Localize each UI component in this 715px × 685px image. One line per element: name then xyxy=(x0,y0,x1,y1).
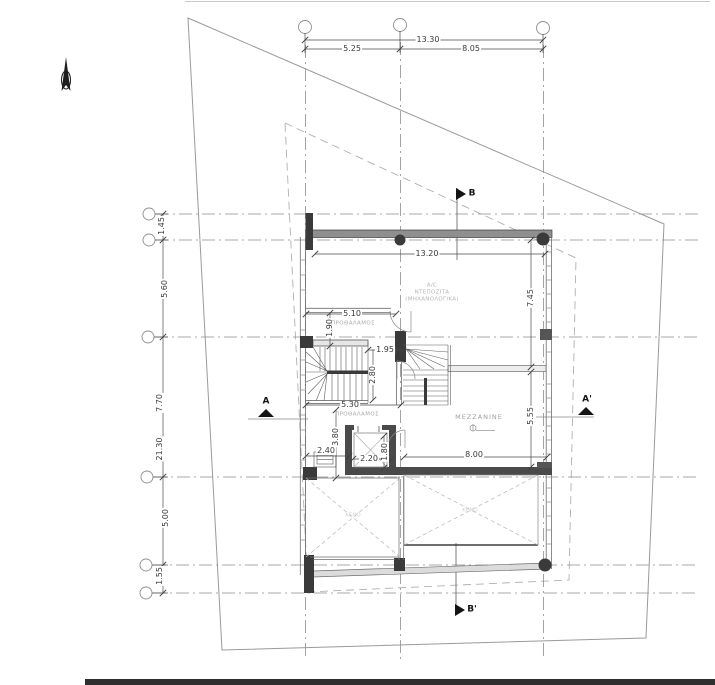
section-label-b-prime: B' xyxy=(466,606,478,615)
room-label-void-right: ΚΕΝΟ xyxy=(461,508,479,514)
dim-left-overall: 21.30 xyxy=(156,437,164,462)
room-label-vestibule-lower: ΠΡΟΘΑΛΑΜΟΣ xyxy=(334,412,380,418)
dim-right-depth: 7.45 xyxy=(527,288,535,308)
dim-top-seg-a: 5.25 xyxy=(342,45,362,53)
section-label-b: B xyxy=(468,190,477,199)
stair-top-wall xyxy=(313,340,368,346)
section-label-a: A xyxy=(262,398,271,407)
dim-left-seg-2: 5.60 xyxy=(161,279,169,299)
mezzanine-bottom-wall xyxy=(345,467,552,475)
dim-top-seg-b: 8.05 xyxy=(461,45,481,53)
dim-left-seg-5: 1.55 xyxy=(156,566,164,586)
stair-main xyxy=(306,342,368,403)
section-line-b xyxy=(455,188,466,616)
dim-mezzanine-width: 8.00 xyxy=(464,451,484,459)
north-arrow-icon xyxy=(62,57,71,91)
dim-left-seg-4: 5.00 xyxy=(162,508,170,528)
section-a-arrow-icon xyxy=(258,409,274,417)
dim-stair-width: 1.95 xyxy=(375,346,395,354)
dim-hall-depth: 3.80 xyxy=(332,427,340,447)
top-wall xyxy=(306,230,552,238)
dim-lift-depth: 1.80 xyxy=(381,442,389,462)
voids xyxy=(306,475,538,560)
dim-top-overall: 13.30 xyxy=(416,36,441,44)
dim-ac-room-width: 13.20 xyxy=(415,250,440,258)
dim-left-seg-3: 7.70 xyxy=(156,393,164,413)
level-marker-icon xyxy=(470,424,495,431)
dim-left-seg-1: 1.45 xyxy=(158,216,166,236)
dim-stair-depth: 2.80 xyxy=(369,365,377,385)
right-wall xyxy=(546,237,551,569)
stair-mezzanine xyxy=(403,345,451,405)
dim-vestibule-width: 5.10 xyxy=(342,310,362,318)
floor-plan-sheet: 13.30 5.25 8.05 1.45 5.60 7.70 21.30 5.0… xyxy=(0,0,715,685)
room-label-mezzanine: MEZZANINE xyxy=(454,414,504,421)
section-b-arrow-icon xyxy=(456,188,466,200)
room-label-ac: A/C ΝΤΕΠΟΖΙΤΑ (ΜΗΧΑΝΟΛΟΓΙΚΑ) xyxy=(405,282,459,303)
room-label-void-left: ΚΕΝΟ xyxy=(344,513,362,519)
section-b-prime-arrow-icon xyxy=(455,604,465,616)
dim-hall-width: 5.30 xyxy=(340,401,360,409)
floor-plan-linework xyxy=(0,0,715,685)
dim-lift-width: 2.20 xyxy=(359,455,379,463)
room-label-vestibule-upper: ΠΡΟΘΑΛΑΜΟΣ xyxy=(330,321,376,327)
sheet-bottom-bar xyxy=(85,679,715,685)
site-boundary xyxy=(188,18,664,650)
section-label-a-prime: A' xyxy=(581,396,593,405)
dim-mezzanine-depth: 5.55 xyxy=(527,406,535,426)
setback-line xyxy=(285,123,576,592)
dim-duct-width: 2.40 xyxy=(316,447,336,455)
section-a-prime-arrow-icon xyxy=(578,407,594,415)
